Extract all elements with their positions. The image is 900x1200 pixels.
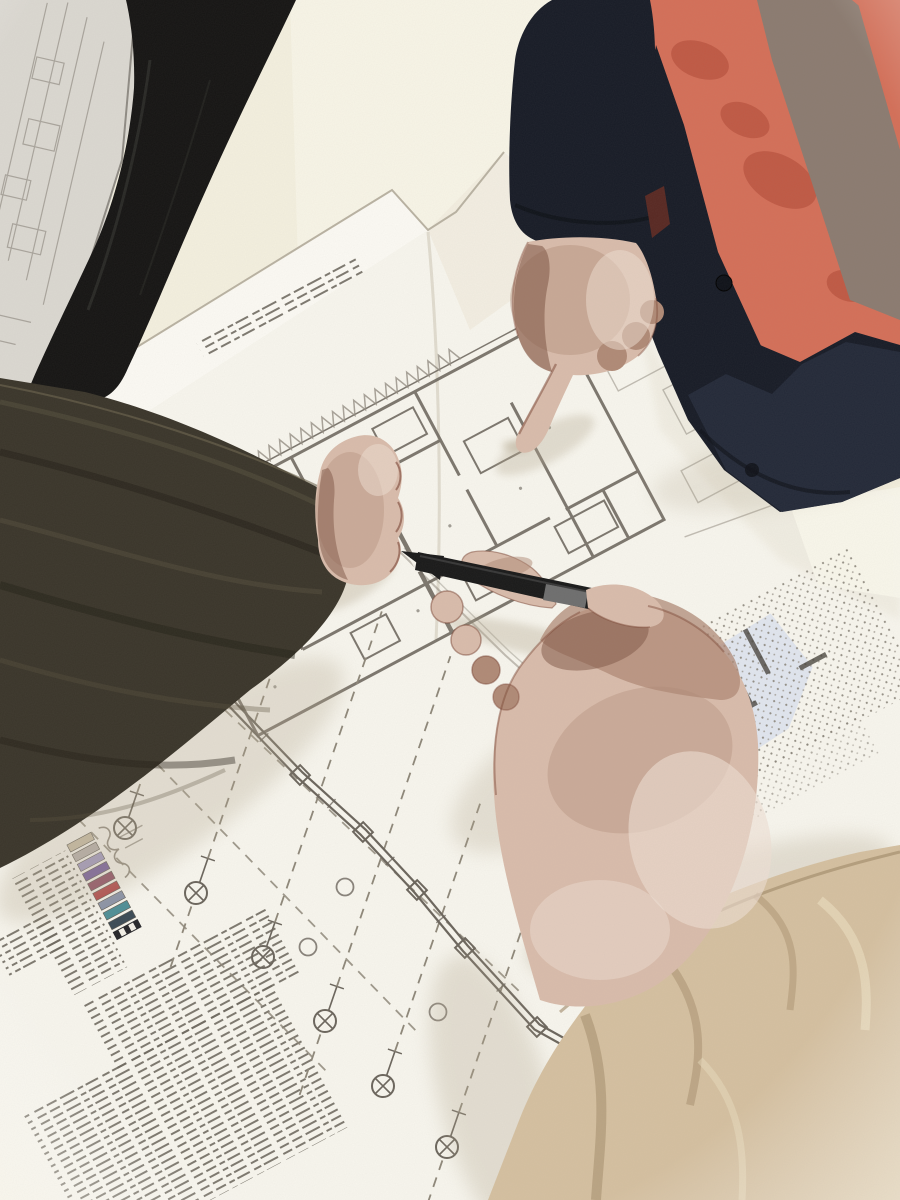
- scene-canvas: [0, 0, 900, 1200]
- photo-blueprint-review: Overhead pencil-sketch styled photo: thr…: [0, 0, 900, 1200]
- noise-overlay: [0, 0, 900, 1200]
